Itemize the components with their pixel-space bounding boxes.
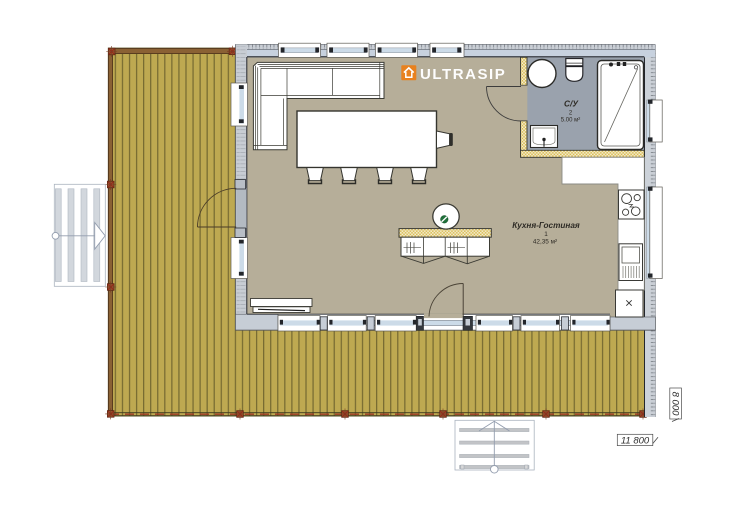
svg-text:1: 1 <box>544 231 548 238</box>
svg-text:ULTRASIP: ULTRASIP <box>420 66 506 83</box>
svg-text:8 000: 8 000 <box>669 392 680 416</box>
svg-text:42,35 м²: 42,35 м² <box>533 238 557 245</box>
svg-text:5.00 м²: 5.00 м² <box>561 117 580 123</box>
svg-text:Кухня-Гостиная: Кухня-Гостиная <box>512 221 580 230</box>
svg-text:11 800: 11 800 <box>621 435 650 446</box>
svg-text:С/У: С/У <box>564 98 579 108</box>
